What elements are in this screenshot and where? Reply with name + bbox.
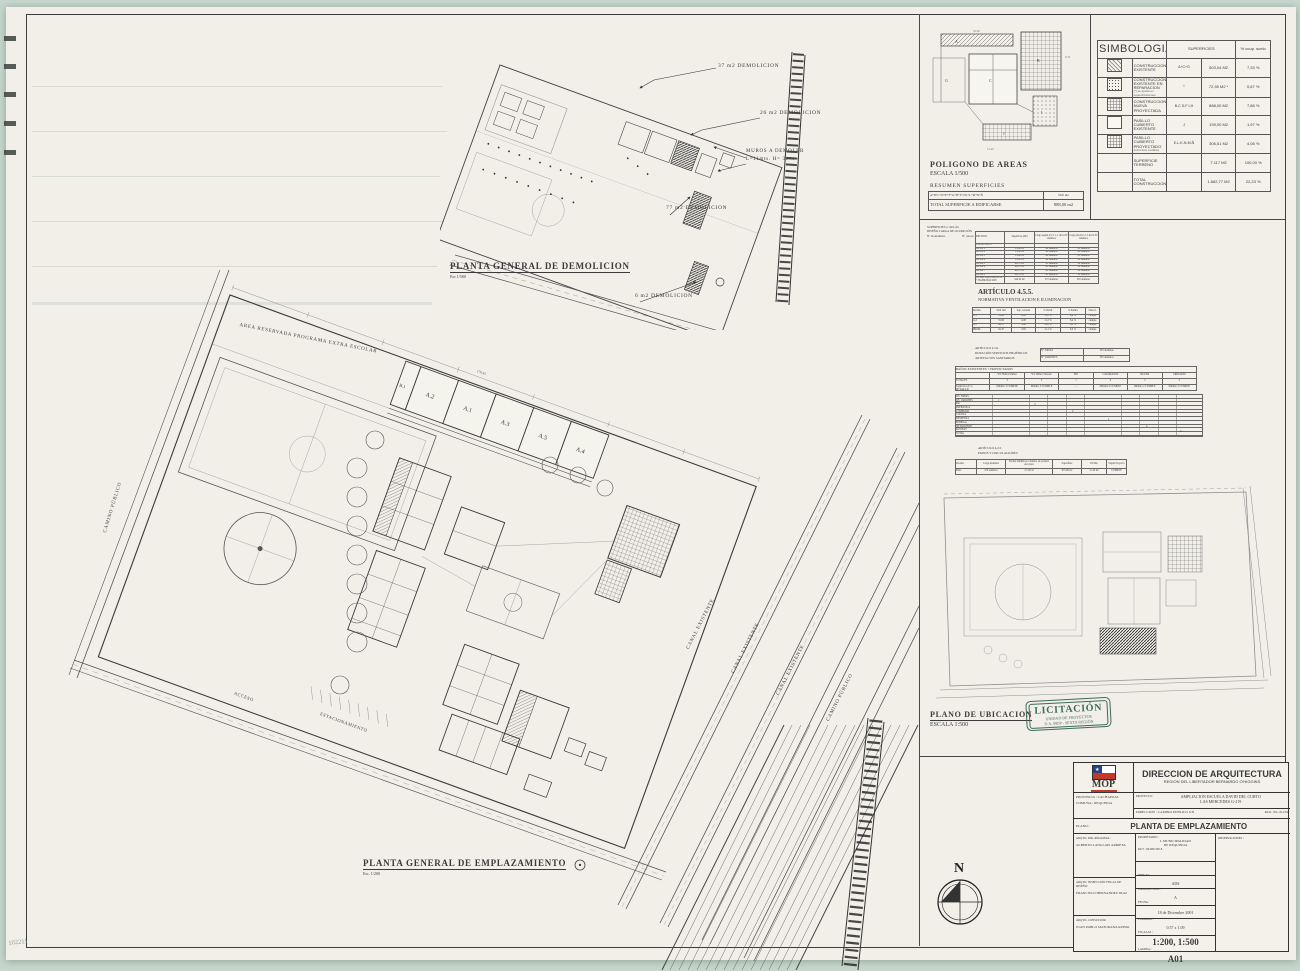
banos-cell: Mínimo 3 CUMPLE bbox=[990, 385, 1024, 391]
normativa-head2: DISEÑO CARGA DE OCUPACIÓN bbox=[927, 230, 972, 233]
patios-cell: 1.120 m² bbox=[1082, 469, 1107, 475]
banos-cell: — bbox=[1059, 385, 1093, 391]
simbologia-row-area: 7.117 M2 bbox=[1201, 154, 1236, 173]
patios-table: Recinto Carga Alumnos Norma mínima por a… bbox=[955, 459, 1127, 475]
comuna-label: COMUNA : bbox=[1076, 801, 1093, 805]
simbologia-row-area: 888,00 M2 bbox=[1201, 97, 1236, 116]
demolition-label-muros-1: MUROS A DEMOLER bbox=[746, 149, 804, 155]
simbologia-row-pct: 1,97 % bbox=[1236, 116, 1271, 135]
simbologia-row: CONSTRUCCION NUEVA PROYECTADA B-C D-F I-… bbox=[1098, 97, 1271, 116]
ventilacion-row: PROM. 52,47 5,85 11,1 % 8,3 % cumple bbox=[973, 328, 1100, 332]
simbologia-swatch bbox=[1107, 135, 1122, 148]
simbologia-swatch bbox=[1107, 59, 1122, 72]
banos-cell: Mínimo 2 CUMPLE bbox=[1128, 385, 1162, 391]
panel-divider-h1 bbox=[919, 219, 1285, 220]
banos-cell: Mínimo 2 CUMPLE bbox=[1162, 385, 1196, 391]
north-letter: N bbox=[954, 861, 964, 876]
org-name: DIRECCION DE ARQUITECTURA bbox=[1134, 769, 1290, 779]
svg-text:45.60: 45.60 bbox=[973, 29, 980, 33]
detalle-row-label: DESPENSA bbox=[956, 417, 992, 420]
normativa-head7: ARTEFACTOS SANITARIOS bbox=[975, 357, 1015, 361]
proyecto-label: PROYECTO : bbox=[1136, 794, 1153, 807]
detalle-mark: 4 bbox=[1146, 425, 1147, 428]
ubicacion-plan-drawing bbox=[928, 480, 1273, 702]
aulas-col3: Carga efectiva 1,3 m²/al Nº alumnos bbox=[1069, 232, 1099, 244]
ventilacion-cell: 11,1 % bbox=[1036, 328, 1061, 332]
patios-cell: 675,00 m² bbox=[1053, 469, 1082, 475]
ventilacion-cell: 5,85 bbox=[1012, 328, 1036, 332]
detalle-row-label: WC NIÑAS bbox=[956, 395, 992, 398]
simbologia-row-note: estructura metálica bbox=[1134, 149, 1166, 152]
simbologia-row-label: CONSTRUCCION NUEVA PROYECTADA bbox=[1134, 100, 1166, 113]
simbologia-row: TOTAL CONSTRUCCION 1.682,77 M2 22,23 % bbox=[1098, 172, 1271, 191]
simbologia-swatch bbox=[1107, 78, 1122, 91]
arq1-name: ALBERTO LANGLAIS ARRIETA bbox=[1076, 843, 1133, 847]
observaciones-cell: OBSERVACIONES : bbox=[1216, 834, 1290, 952]
detalle-mark: 2 bbox=[1072, 410, 1073, 413]
detalle-row-label: COCINA bbox=[956, 413, 992, 416]
aulas-rows: EXISTENTES AULA 1 53,86 m² 48 alumnos 41… bbox=[976, 244, 1099, 284]
resumen-superficies-title: RESUMEN SUPERFICIES bbox=[930, 183, 1005, 189]
detalle-mark: 3 bbox=[1034, 403, 1035, 406]
ubicacion-scale: ESCALA 1:500 bbox=[930, 722, 968, 729]
banos-rows: TOTALES 3 3 1 6 2 2 Según O.G.U.C. Mínim… bbox=[956, 379, 1197, 391]
patios-row: Patio 270 alumnos 2,5 m²/al 675,00 m² 1.… bbox=[956, 469, 1127, 475]
aulas-col2: Carga según 4.5.5. 1,1 m²/al Nº alumnos bbox=[1035, 232, 1069, 244]
proyecto-cell: PROYECTO : AMPLIACION ESCUELA DAVID DEL … bbox=[1134, 793, 1290, 819]
normativa-table-aulas: RECINTO Superficie (M²) Carga según 4.5.… bbox=[975, 231, 1099, 284]
simbologia-row-label: SUPERFICIE TERRENO bbox=[1134, 159, 1166, 167]
svg-text:A: A bbox=[955, 39, 958, 44]
rol-value: ROL. 99-19-219 bbox=[1265, 810, 1288, 814]
svg-text:9.35: 9.35 bbox=[1065, 55, 1071, 59]
plano-cell: PLANO : PLANTA DE EMPLAZAMIENTO bbox=[1074, 819, 1290, 834]
simbologia-row: CONSTRUCCION EXISTENTE A+C+G 503,04 M2 7… bbox=[1098, 59, 1271, 78]
ventilacion-header: Recinto SUP. M2 Sup. ventana % Ventil. %… bbox=[973, 308, 1100, 315]
simbologia-row-label: PASILLO CUBIERTO PROYECTADO bbox=[1134, 136, 1166, 149]
simbologia-row-label: CONSTRUCCION EXISTENTE bbox=[1134, 64, 1166, 72]
detalle-grid: WC NIÑAS WC VARONES BD PREBASICA COMEDOR… bbox=[955, 394, 1203, 437]
site-plan-title: PLANTA GENERAL DE EMPLAZAMIENTO bbox=[363, 858, 566, 870]
simbologia-row-code: I bbox=[1167, 77, 1202, 97]
arq1-label: ARQTO. DIR. REGIONAL: bbox=[1076, 836, 1133, 840]
north-arrow: N bbox=[928, 856, 992, 932]
detalle-row-label: TOTAL bbox=[956, 432, 992, 435]
simbologia-row: SUPERFICIE TERRENO 7.117 M2 100,00 % bbox=[1098, 154, 1271, 173]
demolition-label-26: 26 m2 DEMOLICION bbox=[760, 110, 821, 116]
poligono-title: POLIGONO DE AREAS bbox=[930, 160, 1028, 169]
resumen-superficies-table: A+B+C+D+E+F+G+H+I+J+K+L+M+N+Ñ SUP. m2 TO… bbox=[928, 191, 1084, 211]
direccion-value: CAMINO PUBLICO S/N bbox=[1158, 810, 1194, 814]
detalle-row-label: SH DOCENTE bbox=[956, 425, 992, 428]
normativa-head4: Nº cursos bbox=[962, 235, 974, 238]
binding-mark bbox=[4, 64, 16, 69]
svg-text:B: B bbox=[1037, 58, 1040, 63]
proyecto-line2: LAS MERCEDES G-219 bbox=[1153, 799, 1288, 804]
patios-cell: CUMPLE bbox=[1107, 469, 1127, 475]
detalle-row-label: DUCHAS bbox=[956, 428, 992, 431]
lamina-label: LAMINA : bbox=[1138, 947, 1151, 951]
demolition-label-37: 37 m2 DEMOLICION bbox=[718, 63, 779, 69]
ventilacion-cell: cumple bbox=[1086, 328, 1100, 332]
aulas-col0: RECINTO bbox=[976, 232, 1005, 244]
simbologia-title: SIMBOLOGIA bbox=[1098, 41, 1167, 59]
patios-cell: 2,5 m²/al bbox=[1006, 469, 1053, 475]
detalle-title: DETALLE bbox=[955, 388, 969, 392]
resumen-total-label: TOTAL SUPERFICIE A EDIFICARSE bbox=[929, 200, 1044, 211]
demolition-label-muros-2: L=11mts. H= 3mts bbox=[746, 157, 795, 163]
patios-header: Recinto Carga Alumnos Norma mínima por a… bbox=[956, 460, 1127, 469]
arq3-label: ARQTO. CONSULTOR: bbox=[1076, 918, 1133, 922]
simbologia-row-pct: 100,00 % bbox=[1236, 154, 1271, 173]
escalas-label: ESCALAS : bbox=[1138, 930, 1153, 934]
ventilacion-cell: 52,47 bbox=[991, 328, 1012, 332]
mop-flag-icon: ★ bbox=[1092, 765, 1116, 780]
detalle-row-label: PREBASICA bbox=[956, 406, 992, 409]
demolition-label-77: 77 m2 DEMOLICION bbox=[666, 205, 727, 211]
org-cell: DIRECCION DE ARQUITECTURA REGION DEL LIB… bbox=[1134, 763, 1290, 793]
arq3-name: JUAN PABLO MATURANA RUBIO bbox=[1076, 925, 1133, 929]
alumnos-count-boxes: Nº NIÑAS 135 alumnas Nº VARONES 135 alum… bbox=[1040, 348, 1130, 362]
simbologia-table: SIMBOLOGIA SUPERFICIES % ocup. suelo CON… bbox=[1097, 40, 1271, 192]
simbologia-row-label: TOTAL CONSTRUCCION bbox=[1134, 178, 1166, 186]
simbologia-row-area: 503,04 M2 bbox=[1201, 59, 1236, 78]
simbologia-row: PASILLO CUBIERTO PROYECTADOestructura me… bbox=[1098, 135, 1271, 154]
patios-rows: Patio 270 alumnos 2,5 m²/al 675,00 m² 1.… bbox=[956, 469, 1127, 475]
provincia-label: PROVINCIA : bbox=[1076, 795, 1097, 799]
binding-mark bbox=[4, 121, 16, 126]
panel-divider-h2 bbox=[919, 756, 1285, 757]
patios-cell: 270 alumnos bbox=[977, 469, 1006, 475]
banos-cell: Mínimo 6 CUMPLE bbox=[1093, 385, 1127, 391]
simbologia-row-code: A+C+G bbox=[1167, 59, 1202, 78]
simbologia-row-code: B-C D-F I-H bbox=[1167, 97, 1202, 116]
observaciones-label: OBSERVACIONES : bbox=[1218, 836, 1288, 840]
plano-title: PLANTA DE EMPLAZAMIENTO bbox=[1090, 822, 1288, 831]
arquitectos-column: ARQTO. DIR. REGIONAL: ALBERTO LANGLAIS A… bbox=[1074, 834, 1136, 952]
simbologia-row-code: J bbox=[1167, 116, 1202, 135]
articulo-title: ARTÍCULO 4.5.5. bbox=[978, 288, 1033, 296]
dimension-label: 170.85 bbox=[476, 369, 487, 376]
simbologia-row-pct: 0,67 % bbox=[1236, 77, 1271, 97]
patios-cell: Patio bbox=[956, 469, 977, 475]
banos-cell: Mínimo 3 CUMPLE bbox=[1024, 385, 1058, 391]
detalle-row: TOTAL bbox=[956, 432, 1202, 436]
aulas-cell: TOTAL EQUIVALENTE + HABILITACION bbox=[976, 277, 1005, 283]
binding-mark bbox=[4, 150, 16, 155]
panel-divider-simbologia bbox=[1090, 14, 1091, 219]
mop-logo-cell: ★ MOP bbox=[1074, 763, 1134, 793]
comuna-value: REQUINOA bbox=[1094, 801, 1112, 805]
simbologia-col-superficies: SUPERFICIES bbox=[1167, 41, 1236, 59]
aulas-cell: 316 alumnos bbox=[1069, 277, 1099, 283]
estacionamiento-label: ESTACIONAMIENTO bbox=[319, 711, 368, 733]
svg-text:12.40: 12.40 bbox=[987, 147, 994, 151]
banos-table: BAÑOS EXISTENTES + PROYECTADOS WC Baños … bbox=[955, 366, 1197, 391]
meta-column: PROPIETARIO : I. MUNICIPALIDAD DE REQUIN… bbox=[1136, 834, 1216, 952]
resumen-formula-unit: SUP. m2 bbox=[1044, 192, 1084, 200]
detalle-mark: 3 bbox=[1180, 430, 1181, 433]
aulas-row: TOTAL EQUIVALENTE + HABILITACION 414,24 … bbox=[976, 277, 1099, 283]
simbologia-swatch bbox=[1107, 116, 1122, 129]
scanned-architectural-sheet: { "demolition": { "title": "PLANTA GENER… bbox=[0, 0, 1300, 971]
simbologia-swatch bbox=[1107, 98, 1122, 111]
simbologia-row-pct: 4,08 % bbox=[1236, 135, 1271, 154]
rut-value: RUT : 69.080.300-8 bbox=[1138, 847, 1213, 851]
binding-mark bbox=[4, 36, 16, 41]
simbologia-row: CONSTRUCCION EXISTENTE EN REPARACION(*) … bbox=[1098, 77, 1271, 97]
licitacion-stamp: LICITACIÓN UNIDAD DE PROYECTOS D.A. MOP … bbox=[1025, 697, 1111, 731]
varones-value: 135 alumnos bbox=[1084, 355, 1130, 362]
provincia-value: CACHAPOAL bbox=[1098, 795, 1119, 799]
plano-label: PLANO : bbox=[1076, 824, 1090, 828]
simbologia-row-code bbox=[1167, 172, 1202, 191]
ventilacion-cell: PROM. bbox=[973, 328, 991, 332]
simbologia-row-area: 1.682,77 M2 bbox=[1201, 172, 1236, 191]
lamina-value: A01 bbox=[1138, 955, 1213, 964]
direccion-label: DIRECCION : bbox=[1136, 810, 1157, 814]
aulas-cell: 414,24 m² bbox=[1005, 277, 1035, 283]
simbologia-row-area: 72,45 M2 * bbox=[1201, 77, 1236, 97]
svg-text:G: G bbox=[945, 78, 948, 83]
simbologia-row-label: PASILLO CUBIERTO EXISTENTE bbox=[1134, 119, 1166, 132]
simbologia-row-area: 306,51 M2 bbox=[1201, 135, 1236, 154]
resumen-total-value: 888,00 m2 bbox=[1044, 200, 1084, 211]
poligono-areas-drawing: ABC GIJ 45.609.3512.40 bbox=[925, 28, 1085, 158]
detalle-mark: 1 bbox=[998, 399, 999, 402]
mop-text: MOP bbox=[1074, 780, 1133, 790]
provincia-cell: PROVINCIA : CACHAPOAL COMUNA : REQUINOA bbox=[1074, 793, 1134, 819]
poligono-scale: ESCALA 1/500 bbox=[930, 171, 968, 178]
simbologia-row-pct: 22,23 % bbox=[1236, 172, 1271, 191]
normativa-head3: Nº de Alumnos bbox=[927, 235, 945, 238]
site-plan-scale: Esc. 1/200 bbox=[363, 872, 380, 877]
simbologia-row-note: (*) se ajusta en especificaciones bbox=[1134, 90, 1166, 96]
ubicacion-title: PLANO DE UBICACION bbox=[930, 710, 1032, 721]
fecha-label: FECHA : bbox=[1138, 900, 1149, 904]
title-block: ★ MOP DIRECCION DE ARQUITECTURA REGION D… bbox=[1073, 762, 1289, 952]
ventilacion-cell: 8,3 % bbox=[1061, 328, 1086, 332]
normativa-head9: PATIOS Y CIRCULACIONES bbox=[978, 452, 1018, 456]
varones-label: Nº VARONES bbox=[1041, 355, 1084, 362]
banos-row: Según O.G.U.C. Mínimo 3 CUMPLE Mínimo 3 … bbox=[956, 385, 1197, 391]
detalle-mark: 1 bbox=[1108, 418, 1109, 421]
simbologia-row-code: E-L-K-N-M-Ñ bbox=[1167, 135, 1202, 154]
articulo-subtitle: NORMATIVA VENTILACION E ILUMINACION bbox=[978, 297, 1071, 302]
simbologia-rows: CONSTRUCCION EXISTENTE A+C+G 503,04 M2 7… bbox=[1098, 59, 1271, 192]
org-region: REGION DEL LIBERTADOR BERNARDO O'HIGGINS bbox=[1134, 779, 1290, 784]
normativa-table-ventilacion: Recinto SUP. M2 Sup. ventana % Ventil. %… bbox=[972, 307, 1100, 333]
arq2-name: FRANCISCO HERNANDEZ DIAZ bbox=[1076, 891, 1133, 895]
acceso-label: ACCESO bbox=[233, 691, 254, 703]
simbologia-row: PASILLO CUBIERTO EXISTENTE J 139,00 M2 1… bbox=[1098, 116, 1271, 135]
simbologia-row-pct: 7,88 % bbox=[1236, 97, 1271, 116]
detalle-row-label: WC VARONES bbox=[956, 399, 992, 402]
svg-text:C: C bbox=[989, 78, 992, 83]
simbologia-col-pct: % ocup. suelo bbox=[1236, 41, 1271, 59]
detalle-row-label: BODEGA bbox=[956, 421, 992, 424]
ventilacion-rows: A.1 53,86 6,08 11,2 % 8,4 % cumple A.2 5… bbox=[973, 315, 1100, 333]
simbologia-row-area: 139,00 M2 bbox=[1201, 116, 1236, 135]
detalle-row-label: BD bbox=[956, 402, 992, 405]
aulas-cell: 372 alumnos bbox=[1035, 277, 1069, 283]
resumen-formula: A+B+C+D+E+F+G+H+I+J+K+L+M+N+Ñ bbox=[929, 192, 1044, 200]
aulas-col1: Superficie (M²) bbox=[1005, 232, 1035, 244]
arq2-label: ARQTO. INSPECCIÓN FISCAL DE DISEÑO: bbox=[1076, 880, 1133, 888]
binding-mark bbox=[4, 92, 16, 97]
detalle-row-label: COMEDOR bbox=[956, 410, 992, 413]
simbologia-row-pct: 7,33 % bbox=[1236, 59, 1271, 78]
simbologia-row-code bbox=[1167, 154, 1202, 173]
